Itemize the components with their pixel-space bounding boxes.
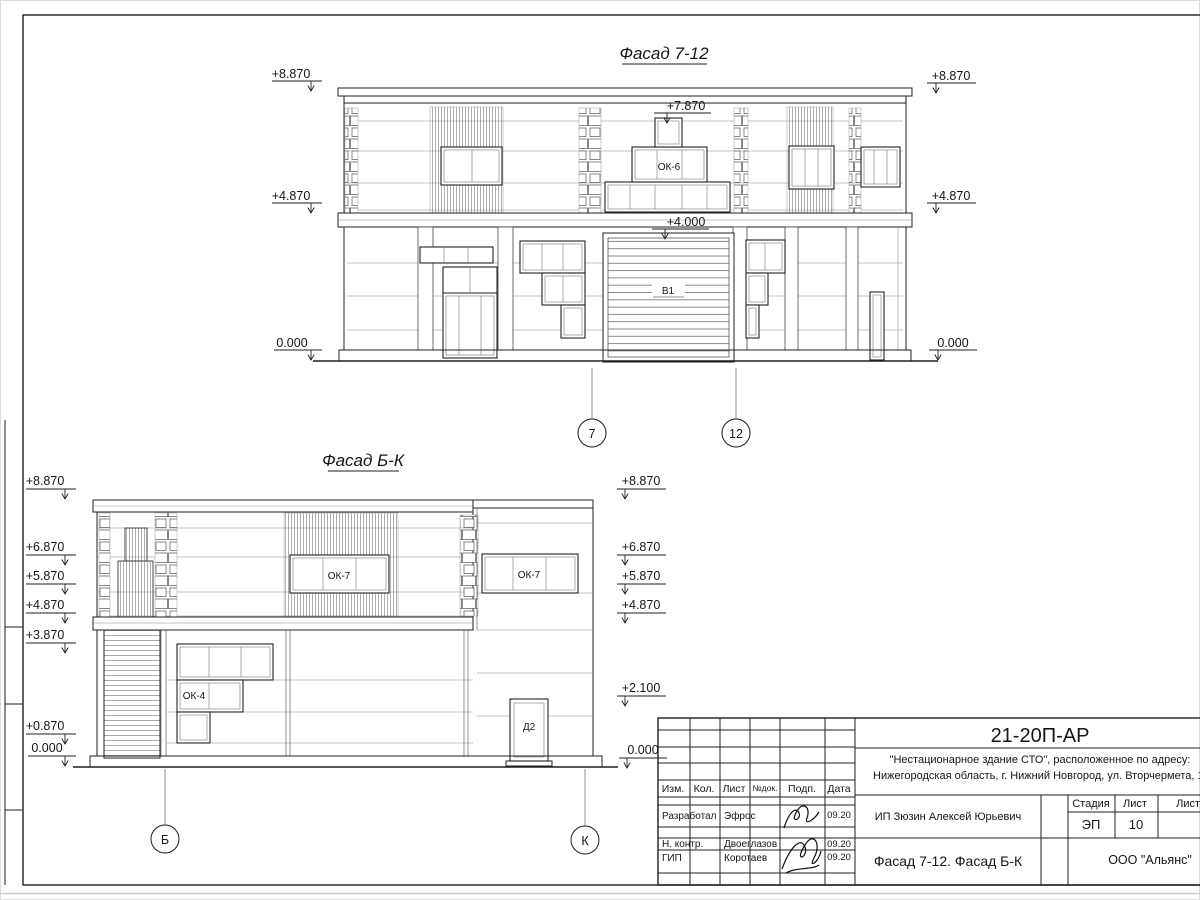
elevation-value: 0.000 — [31, 741, 62, 755]
door-d2-label: Д2 — [523, 722, 536, 733]
col-podp: Подп. — [788, 783, 816, 795]
elevation-mark: 0.000 — [274, 336, 322, 360]
sheet-label: Лист — [1123, 798, 1147, 810]
signature-developer — [784, 806, 819, 828]
role-developer: Разработал — [662, 810, 717, 822]
elevation-mark: +5.870 — [26, 569, 76, 594]
svg-text:7: 7 — [589, 427, 596, 441]
elevation-mark: 0.000 — [929, 336, 977, 360]
axis-k: К — [571, 769, 599, 854]
developer-date: 09.20 — [827, 810, 851, 821]
elevation-value: +8.870 — [26, 474, 65, 488]
elevation-value: +5.870 — [622, 569, 661, 583]
axis-12: 12 — [722, 368, 750, 447]
ncontr-date: 09.20 — [827, 839, 851, 850]
elevation-mark: +4.870 — [26, 598, 76, 623]
svg-text:Б: Б — [161, 833, 169, 847]
elevation-value: +4.870 — [622, 598, 661, 612]
elevation-mark: 0.000 — [28, 741, 76, 766]
elevation-value: 0.000 — [276, 336, 307, 350]
quoin-column — [345, 108, 358, 213]
elevation-value: +8.870 — [622, 474, 661, 488]
window-ok7-right-label: ОК-7 — [518, 570, 541, 581]
door-step — [506, 761, 552, 766]
facade-drawing: Фасад 7-12 ОК-6 — [0, 0, 1200, 900]
elevation-mark: +8.870 — [927, 69, 976, 93]
parapet — [338, 88, 912, 96]
elevation-value: 0.000 — [627, 743, 658, 757]
elevation-value: +3.870 — [26, 628, 65, 642]
gip-name: Коротаев — [724, 853, 767, 864]
stepped-window-right — [746, 240, 785, 338]
stepped-window-left — [520, 241, 585, 338]
stage-value: ЭП — [1082, 817, 1101, 832]
pier — [418, 227, 433, 350]
elevation-value: +0.870 — [26, 719, 65, 733]
role-gip: ГИП — [662, 853, 682, 864]
svg-text:12: 12 — [729, 427, 743, 441]
quoin-column — [579, 108, 601, 213]
gate-v1: В1 — [603, 233, 734, 362]
facade-7-12: Фасад 7-12 ОК-6 — [313, 44, 938, 447]
elevation-value: +5.870 — [26, 569, 65, 583]
elevation-mark: +4.870 — [272, 189, 322, 213]
parapet-wing — [473, 500, 593, 508]
elevation-mark: +6.870 — [617, 540, 666, 565]
title-block: 21-20П-АР "Нестационарное здание СТО", р… — [658, 718, 1200, 885]
quoin-column — [734, 108, 748, 213]
facade-b-k: Фасад Б-К ОК-7 ОК-7 — [73, 451, 618, 854]
window-2f-left — [441, 147, 502, 185]
axis-7: 7 — [578, 368, 606, 447]
col-list: Лист — [723, 783, 746, 795]
drawing-sheet: Фасад 7-12 ОК-6 — [0, 0, 1200, 900]
elevation-value: +2.100 — [622, 681, 661, 695]
elevation-mark: +6.870 — [26, 540, 76, 565]
elevation-value: +4.870 — [272, 189, 311, 203]
elevation-value: +4.870 — [26, 598, 65, 612]
elevation-value: 0.000 — [937, 336, 968, 350]
project-name-line1: "Нестационарное здание СТО", расположенн… — [890, 754, 1191, 766]
elevation-value: +4.000 — [667, 215, 706, 229]
window-ok4-label: ОК-4 — [183, 691, 206, 702]
gip-date: 09.20 — [827, 852, 851, 863]
project-name-line2: Нижегородская область, г. Нижний Новгоро… — [873, 770, 1200, 782]
doc-number: 21-20П-АР — [991, 725, 1090, 747]
ncontr-name: Двоеглазов — [724, 839, 777, 850]
drawing-title: Фасад 7-12. Фасад Б-К — [874, 853, 1023, 869]
window-ok6-label: ОК-6 — [658, 162, 681, 173]
developer-name: Эфрос — [724, 810, 756, 822]
client-name: ИП Зюзин Алексей Юрьевич — [875, 811, 1022, 823]
quoin-column — [155, 513, 177, 617]
col-kol: Кол. — [694, 783, 715, 795]
quoin-column — [99, 513, 110, 617]
pier — [733, 227, 747, 350]
floor-band — [93, 617, 473, 630]
elevation-mark: +8.870 — [617, 474, 666, 499]
louver-window-upper — [125, 528, 147, 561]
pier — [846, 227, 858, 350]
window-ok7-center: ОК-7 — [290, 555, 389, 593]
window-ok4: ОК-4 — [177, 644, 273, 743]
role-ncontr: Н. контр. — [662, 839, 703, 850]
elevation-value: +8.870 — [272, 67, 311, 81]
svg-text:К: К — [581, 834, 589, 848]
col-data: Дата — [827, 783, 850, 795]
window-ok6: ОК-6 — [605, 118, 730, 212]
sheet-number: 10 — [1129, 817, 1143, 832]
elevation-mark: +5.870 — [617, 569, 666, 594]
facade-bottom-title: Фасад Б-К — [322, 451, 405, 470]
elevation-mark: +3.870 — [26, 628, 76, 653]
elevation-value: +8.870 — [932, 69, 971, 83]
elevation-mark: +4.870 — [617, 598, 666, 623]
elevation-mark: +8.870 — [272, 67, 322, 91]
quoin-column — [460, 515, 478, 616]
elevation-mark: +8.870 — [26, 474, 76, 499]
window-2f-corner — [861, 147, 900, 187]
window-ok7-right: ОК-7 — [482, 554, 578, 593]
filing-strip — [5, 420, 23, 885]
signature-ncontr-gip — [782, 839, 821, 873]
elevation-value: +7.870 — [667, 99, 706, 113]
pier — [498, 227, 513, 350]
elevation-mark: +2.100 — [617, 681, 666, 706]
company-name: ООО "Альянс" — [1108, 853, 1192, 867]
col-izm: Изм. — [662, 783, 685, 795]
facade-top-title: Фасад 7-12 — [619, 44, 709, 63]
window-2f-slat — [789, 146, 834, 189]
gate-v1-label: В1 — [662, 286, 675, 297]
elevation-mark: +4.870 — [927, 189, 976, 213]
parapet-band — [344, 96, 906, 103]
window-ok7-center-label: ОК-7 — [328, 571, 351, 582]
elevation-value: +6.870 — [622, 540, 661, 554]
elevation-value: +4.870 — [932, 189, 971, 203]
louver-window-lower — [118, 561, 153, 623]
col-ndok: №док. — [753, 783, 778, 793]
axis-b: Б — [151, 769, 179, 853]
elevation-value: +6.870 — [26, 540, 65, 554]
stage-label: Стадия — [1072, 798, 1110, 810]
rollup-gate — [104, 630, 160, 758]
quoin-column — [849, 108, 861, 213]
sheets-label: Листов — [1176, 798, 1200, 810]
pier — [785, 227, 798, 350]
